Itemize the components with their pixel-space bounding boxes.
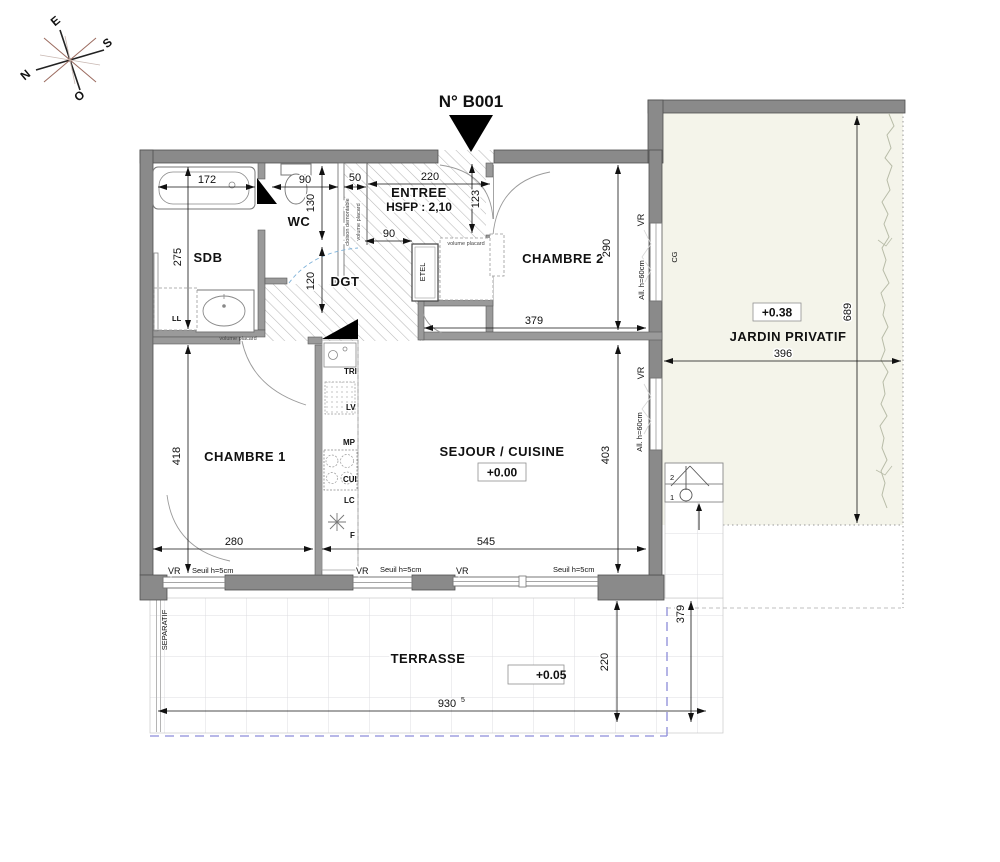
label-seuil-ch1: Seuil h=5cm [192,566,233,575]
room-label-chambre1: CHAMBRE 1 [204,449,286,464]
dim-379-terrasse: 379 [675,605,687,623]
door-leaf-sdb [257,178,277,204]
step-number-2: 2 [670,473,674,482]
room-label-sdb: SDB [194,250,223,265]
snowflake-icon [328,513,346,531]
label-cloison-demontable: cloison demontable [345,198,351,245]
dim-172: 172 [198,174,216,186]
dim-50: 50 [349,172,361,184]
dim-930-sup: 5 [461,697,465,704]
washbasin-icon [196,290,254,332]
label-vr-sejour-2: VR [456,566,469,576]
label-cg: CG [670,251,679,262]
svg-text:+0.05: +0.05 [536,668,567,682]
label-vr-sejour-right: VR [636,366,646,379]
room-label-entree: ENTREE [391,185,447,200]
dim-130: 130 [305,194,317,212]
compass-n: N [18,67,34,83]
label-lc: LC [344,496,355,505]
label-allege-ch2: All. h=60cm [637,260,646,299]
compass-o: O [71,88,87,105]
compass-icon: N E S O [18,13,115,104]
room-label-chambre2: CHAMBRE 2 [522,251,604,266]
label-ll: LL [172,314,182,323]
dim-120: 120 [305,272,317,290]
compass-e: E [48,13,63,29]
floor-plan-page: N E S O N° B001 2 1 [0,0,1000,857]
dim-123: 123 [470,190,482,208]
dim-220: 220 [421,171,439,183]
level-badge-sejour: +0.00 [478,463,526,481]
unit-title: N° B001 [439,92,503,111]
room-label-sejour: SEJOUR / CUISINE [439,444,564,459]
room-label-terrasse: TERRASSE [391,651,466,666]
svg-text:+0.00: +0.00 [487,466,518,480]
dim-290: 290 [601,239,613,257]
washer-spot [154,288,197,330]
label-seuil-sejour-1: Seuil h=5cm [380,565,421,574]
terrasse-area [150,502,901,736]
floor-plan-svg: N E S O N° B001 2 1 [0,0,1000,857]
dim-220-terrasse: 220 [599,653,611,671]
label-vr-ch2: VR [636,213,646,226]
dim-930: 930 [438,698,456,710]
dim-689: 689 [842,303,854,321]
sink-icon [324,343,356,367]
dim-418: 418 [171,447,183,465]
cooktop-icon [324,450,357,490]
label-vr-ch1: VR [168,566,181,576]
label-tri: TRI [344,367,357,376]
label-lv: LV [346,403,356,412]
label-vr-sejour-1: VR [356,566,369,576]
dim-90-wc: 90 [299,174,311,186]
label-f: F [350,531,355,540]
room-label-entree-hsfp: HSFP : 2,10 [386,200,452,214]
svg-text:+0.38: +0.38 [762,306,793,320]
label-volume-placard-entree: volume placard [447,241,484,247]
dim-90-entree: 90 [383,228,395,240]
label-mp: MP [343,438,356,447]
dim-280: 280 [225,536,243,548]
dim-545: 545 [477,536,495,548]
room-label-jardin: JARDIN PRIVATIF [730,329,847,344]
kitchen-strip: TRI LV MP CUI LC F [322,340,358,570]
label-seuil-sejour-2: Seuil h=5cm [553,565,594,574]
dim-403: 403 [600,446,612,464]
room-label-dgt: DGT [331,274,360,289]
room-label-wc: WC [288,214,311,229]
step-number-1: 1 [670,493,674,502]
dim-379-ch2: 379 [525,315,543,327]
label-allege-sejour: All. h=60cm [635,412,644,451]
label-volume-placard-strip: volume placard [356,203,362,240]
label-cui: CUI [343,475,357,484]
entrance-arrow-icon [449,115,493,152]
label-separatif: SEPARATIF [160,609,169,650]
dim-396: 396 [774,348,792,360]
level-badge-jardin: +0.38 [753,303,801,321]
label-volume-placard-sdb: volume placard [219,336,256,342]
compass-s: S [100,35,115,51]
dim-275: 275 [172,248,184,266]
level-badge-terrasse: +0.05 [508,665,567,684]
label-etel: ETEL [418,263,427,282]
